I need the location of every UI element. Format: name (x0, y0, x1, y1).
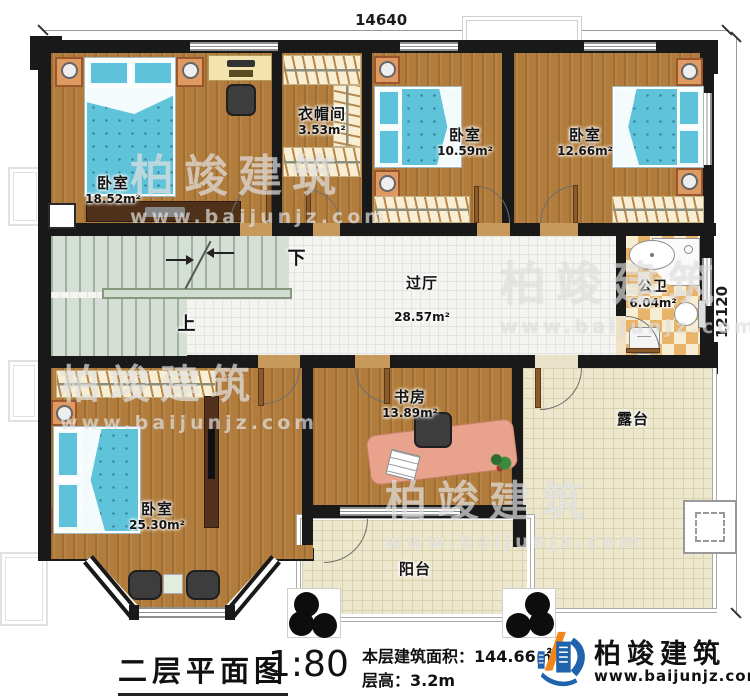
room-label: 过厅 28.57m² (377, 274, 467, 324)
pillow-icon (678, 90, 700, 126)
room-name: 衣帽间 (277, 105, 367, 123)
pillow-icon (378, 129, 400, 165)
monitor-icon (227, 60, 255, 67)
wall (38, 40, 51, 561)
stair-flight-lower (51, 298, 187, 356)
room-name: 露台 (603, 410, 663, 428)
room-area: 18.52m² (68, 192, 158, 206)
pillow-icon (89, 61, 129, 85)
wall (225, 605, 235, 620)
wall (302, 368, 313, 561)
window (190, 42, 278, 51)
door-leaf (306, 189, 311, 223)
ac-platform (8, 360, 40, 422)
sink-drain-icon (650, 253, 654, 257)
wall (129, 605, 139, 620)
room-name: 过厅 (377, 274, 467, 292)
room-label: 公卫 6.04m² (618, 279, 688, 310)
stairs-up-label: 上 (172, 314, 202, 336)
room-area: 10.59m² (420, 144, 510, 158)
door-threshold (535, 355, 578, 368)
stair-arrow-line (214, 252, 234, 254)
armchair (186, 570, 220, 600)
door-leaf (626, 348, 660, 353)
pillow-icon (378, 90, 400, 126)
door-leaf (474, 186, 479, 223)
top-dimension-label: 14640 (355, 11, 407, 29)
room-label: 卧室 18.52m² (68, 174, 158, 206)
room-label: 阳台 (385, 560, 445, 578)
room-name: 公卫 (618, 279, 688, 296)
door-threshold (258, 355, 300, 368)
room-label: 露台 (603, 410, 663, 428)
plant-icon (488, 450, 512, 474)
lamp-icon (61, 62, 78, 79)
lamp-icon (56, 405, 73, 422)
brand-logo-svg (533, 628, 591, 690)
keyboard-icon (229, 70, 253, 77)
lower-roof-outline (0, 552, 48, 626)
stair-arrow-head (206, 248, 214, 258)
closet-rack (283, 147, 361, 177)
ac-platform (8, 167, 42, 226)
bay-window-bottom (137, 607, 227, 618)
floor-area-label: 本层建筑面积： (362, 647, 474, 666)
door-threshold (355, 355, 390, 368)
nightstand (374, 170, 400, 198)
floor-area-line: 本层建筑面积：144.66㎡ (362, 643, 552, 667)
pillow-icon (57, 483, 79, 529)
floor-height-label: 层高： (362, 671, 410, 690)
column-dot (506, 613, 531, 638)
wall (616, 355, 716, 368)
room-name: 卧室 (68, 174, 158, 192)
brand-name: 柏竣建筑 (594, 632, 726, 671)
room-name: 书房 (365, 388, 455, 406)
room-area: 12.66m² (540, 144, 630, 158)
stair-arrow-line (166, 259, 186, 261)
office-chair (226, 84, 256, 116)
column-base-dashed (695, 512, 725, 542)
lamp-icon (681, 63, 698, 80)
closet-rack (374, 196, 470, 223)
room-area: 28.57m² (377, 310, 467, 324)
drawing-title: 二层平面图 (118, 648, 288, 696)
wall (38, 223, 716, 236)
room-name: 阳台 (385, 560, 445, 578)
wall (272, 48, 282, 228)
pillow-icon (57, 431, 79, 477)
closet-rack (283, 55, 361, 85)
room-label: 卧室 25.30m² (112, 500, 202, 532)
door-threshold (313, 223, 340, 236)
column-cluster (287, 588, 341, 638)
nightstand (374, 56, 400, 84)
stair-railing (102, 288, 292, 299)
stairs-down-label: 下 (282, 248, 312, 270)
window (584, 42, 656, 51)
column-dot (289, 611, 314, 636)
door-leaf (266, 181, 272, 223)
wall (362, 48, 372, 228)
computer-desk (208, 55, 272, 81)
room-label: 衣帽间 3.53m² (277, 105, 367, 137)
brand-website: www.baijunjz.com (594, 667, 750, 685)
door-threshold (616, 316, 626, 355)
tv-icon (208, 429, 215, 479)
right-dimension-label: 12120 (713, 282, 731, 342)
room-name: 卧室 (540, 126, 630, 144)
room-name: 卧室 (420, 126, 510, 144)
pillow-icon (678, 129, 700, 165)
pillow-icon (133, 61, 173, 85)
toilet-tank (698, 300, 706, 328)
armchair (128, 570, 162, 600)
closet-rack (612, 196, 704, 223)
terrace-railing-right (712, 368, 717, 612)
sink (629, 240, 675, 270)
room-name: 卧室 (112, 500, 202, 518)
sliding-door (340, 507, 460, 516)
door-threshold (240, 223, 272, 236)
nightstand (176, 57, 204, 87)
side-table (163, 574, 183, 594)
door-leaf (535, 368, 541, 408)
brand-logo-icon (533, 628, 591, 690)
door-leaf (258, 368, 264, 406)
wall-niche (48, 203, 76, 229)
closet-rack (56, 370, 216, 398)
room-area: 6.04m² (618, 296, 688, 310)
column-dot (312, 613, 337, 638)
terrace-column-base (683, 500, 737, 554)
floor-height-value: 3.2m (410, 671, 455, 690)
room-label: 卧室 10.59m² (420, 126, 510, 158)
door-leaf (573, 185, 578, 223)
window (400, 42, 458, 51)
door-threshold (477, 223, 510, 236)
nightstand (676, 168, 703, 196)
nightstand (51, 400, 77, 426)
wall (513, 505, 526, 547)
room-label: 书房 13.89m² (365, 388, 455, 420)
top-dimension-line (42, 30, 728, 31)
stair-arrow-head (186, 255, 194, 265)
floor-plan-sheet: 14640 12120 (0, 0, 750, 696)
lamp-icon (182, 62, 199, 79)
lamp-icon (379, 175, 396, 192)
shower-head-icon (684, 245, 693, 254)
window (702, 258, 712, 306)
room-area: 25.30m² (112, 518, 202, 532)
door-threshold (540, 223, 578, 236)
nightstand (676, 58, 703, 86)
lamp-icon (379, 61, 396, 78)
room-area: 13.89m² (365, 406, 455, 420)
floor-height-line: 层高：3.2m (362, 667, 455, 691)
drawing-scale: 1:80 (268, 644, 349, 685)
nightstand (55, 57, 83, 87)
room-label: 卧室 12.66m² (540, 126, 630, 158)
tv-cabinet (204, 396, 219, 528)
lamp-icon (681, 173, 698, 190)
stair-flight-upper (51, 236, 289, 292)
laptop-icon (145, 207, 185, 217)
room-area: 3.53m² (277, 123, 367, 137)
